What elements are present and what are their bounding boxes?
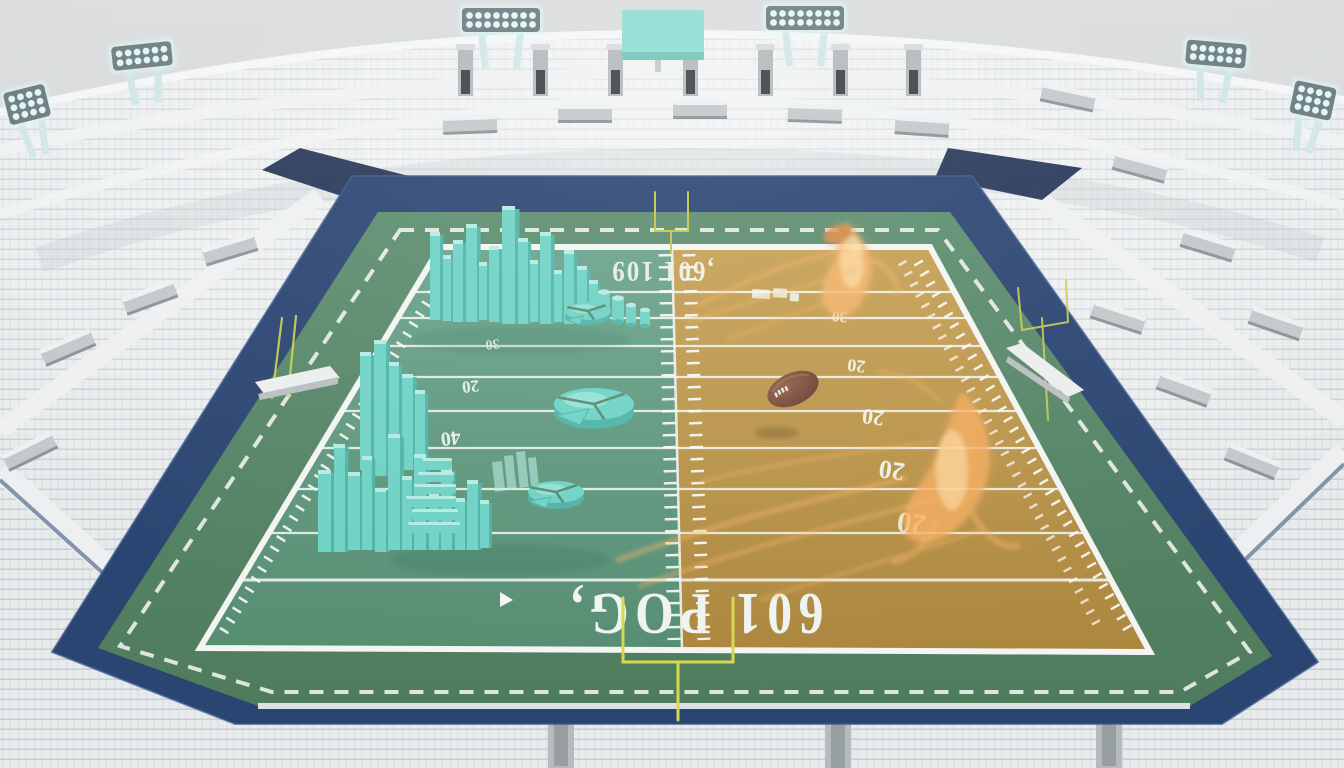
stadium-scene-svg: 3020202020302040 601 POG, ,601 109 — [0, 0, 1344, 768]
light-overlay — [0, 0, 1344, 768]
stadium-render: 3020202020302040 601 POG, ,601 109 — [0, 0, 1344, 768]
